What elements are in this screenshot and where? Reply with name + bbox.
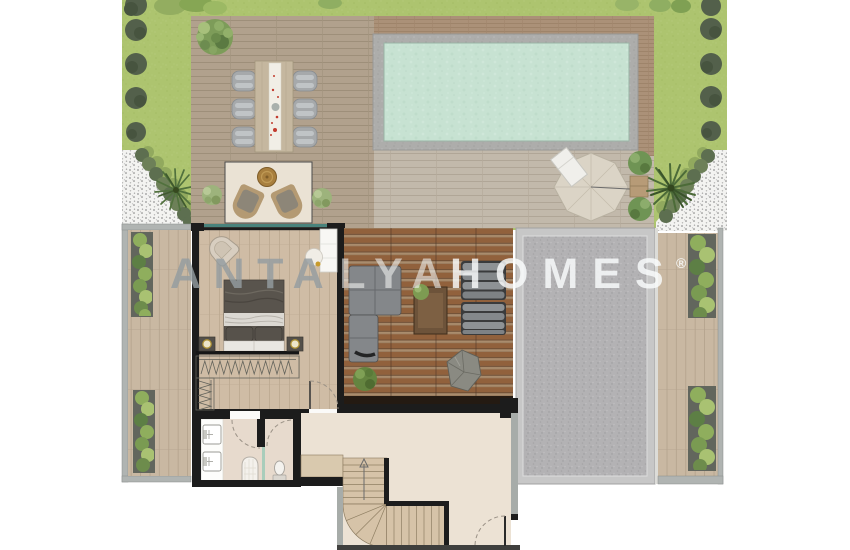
svg-text:HOMES: HOMES	[450, 250, 678, 298]
svg-text:LYA: LYA	[339, 250, 455, 298]
svg-text:®: ®	[676, 255, 687, 271]
svg-text:ANTA: ANTA	[170, 250, 336, 298]
